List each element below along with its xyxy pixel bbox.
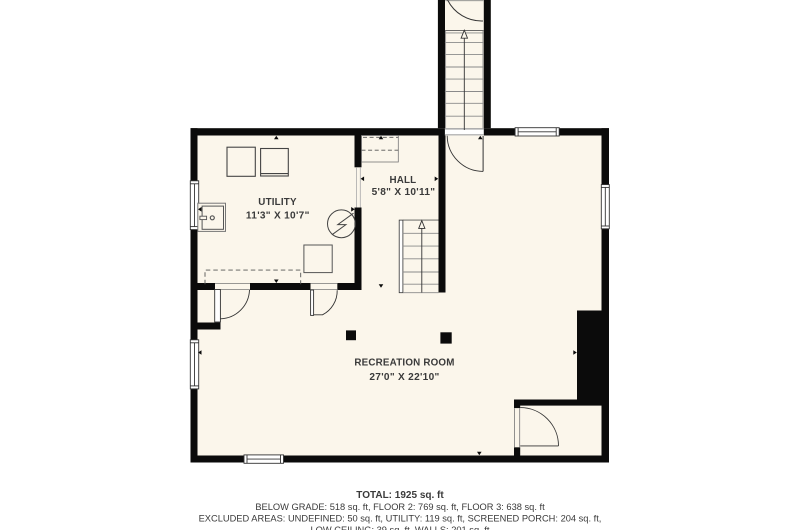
svg-text:5'8" X 10'11": 5'8" X 10'11" xyxy=(372,187,436,198)
svg-text:BELOW GRADE: 518 sq. ft, FLOOR: BELOW GRADE: 518 sq. ft, FLOOR 2: 769 sq… xyxy=(255,502,545,512)
svg-text:EXCLUDED AREAS: UNDEFINED: 50: EXCLUDED AREAS: UNDEFINED: 50 sq. ft, UT… xyxy=(199,514,602,524)
svg-text:LOW CEILING: 39 sq. ft, WALLS:: LOW CEILING: 39 sq. ft, WALLS: 201 sq. f… xyxy=(311,525,490,530)
svg-text:27'0" X 22'10": 27'0" X 22'10" xyxy=(369,372,439,383)
svg-text:11'3" X 10'7": 11'3" X 10'7" xyxy=(246,211,310,222)
svg-text:TOTAL: 1925 sq. ft: TOTAL: 1925 sq. ft xyxy=(356,490,444,501)
svg-text:UTILITY: UTILITY xyxy=(258,197,297,208)
svg-text:RECREATION ROOM: RECREATION ROOM xyxy=(354,358,454,369)
svg-text:HALL: HALL xyxy=(389,175,416,186)
